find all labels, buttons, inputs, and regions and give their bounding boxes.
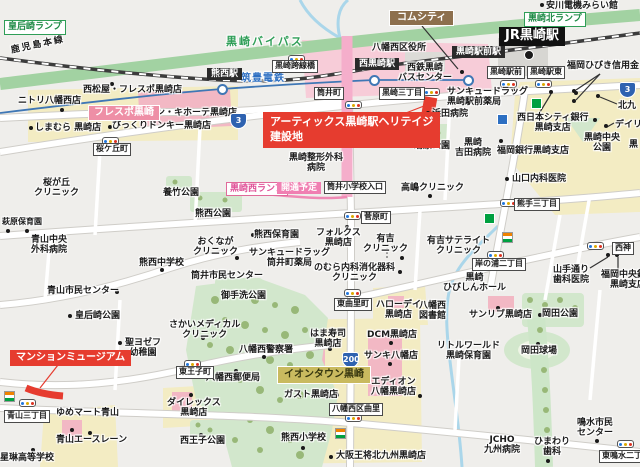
map-label: 筑豊電鉄 xyxy=(241,73,285,85)
map-label: 西松屋・フレスポ黒崎店 xyxy=(83,85,182,95)
poi-dot xyxy=(389,341,393,345)
map-label: 皇后崎ランプ xyxy=(4,20,66,35)
map-label: 安川電機みらい館 xyxy=(546,1,618,11)
map-label: 黒崎駅東 xyxy=(527,66,565,79)
poi-dot xyxy=(572,99,576,103)
map-label: DCM黒崎店 xyxy=(367,330,417,340)
map-label: さかいメディカル クリニック xyxy=(169,320,240,341)
seven-eleven-icon xyxy=(4,391,15,402)
map-label: 山口内科医院 xyxy=(512,174,566,184)
map-label: 開通予定 xyxy=(277,182,321,194)
green-store-icon xyxy=(531,98,542,109)
green-store-icon xyxy=(484,213,495,224)
map-label: 黒崎跨線橋 xyxy=(272,60,318,73)
map-label: ニトリ八幡西店 xyxy=(18,96,81,106)
poi-dot xyxy=(398,270,402,274)
map-label: 西鉄黒崎 バスセンター xyxy=(398,63,452,84)
seven-eleven-icon xyxy=(335,428,346,439)
poi-dot xyxy=(6,229,10,233)
map-label: リトルワールド 黒崎保育園 xyxy=(437,341,500,362)
map-label: ゆめマート青山 xyxy=(56,408,119,418)
map-label: 青山三丁目 xyxy=(4,410,50,423)
map-label: 西日本シティ銀行 黒崎支店 xyxy=(517,113,588,134)
map-label: 萩原保育園 xyxy=(2,217,42,226)
map-canvas: 皇后崎ランプ黒崎北ランプ黒崎バイパス鹿児島本線筑豊電鉄安川電機みらい館JR黒崎駅… xyxy=(0,0,640,467)
map-label: サンリブ黒崎店 xyxy=(469,310,532,320)
poi-dot xyxy=(118,341,122,345)
kurosaki-area-map: 皇后崎ランプ黒崎北ランプ黒崎バイパス鹿児島本線筑豊電鉄安川電機みらい館JR黒崎駅… xyxy=(0,0,640,467)
map-label: ダイレックス 黒崎店 xyxy=(167,398,221,419)
map-label: 西神 xyxy=(612,242,634,255)
seven-eleven-icon xyxy=(502,232,513,243)
poi-dot xyxy=(460,70,464,74)
map-label: ひまわり 歯科 xyxy=(534,437,570,458)
tram-station-marker xyxy=(463,75,474,86)
map-label: 青山エースレーン xyxy=(56,435,127,445)
map-label: 岡田公園 xyxy=(542,309,578,319)
poi-dot xyxy=(540,3,544,7)
map-label: 黒崎整形外科 病院 xyxy=(289,153,343,174)
poi-dot xyxy=(301,446,305,450)
poi-dot xyxy=(499,139,503,143)
map-label: 八幡西警察署 xyxy=(239,345,293,355)
map-label: 黒崎 ひびしんホール xyxy=(443,273,506,294)
map-label: 菅原町 xyxy=(361,211,391,224)
map-label: 八幡西 図書館 xyxy=(419,301,446,322)
map-label: しまむら 黒崎店 xyxy=(35,123,101,133)
map-label: 桜が丘 クリニック xyxy=(34,178,79,199)
map-label: 黒崎駅前 xyxy=(487,66,525,79)
map-label: 東鳴水二丁目 xyxy=(599,450,640,463)
map-label: 星琳高等学校 xyxy=(0,453,54,463)
poi-dot xyxy=(595,439,599,443)
poi-dot xyxy=(329,455,333,459)
map-label: 八幡西区役所 xyxy=(372,43,426,53)
map-label: 八幡西区曲里 xyxy=(329,403,383,416)
map-label: 筒井小学校入口 xyxy=(324,181,386,194)
map-label: 熊西小学校 xyxy=(281,433,326,443)
map-label: 熊西公園 xyxy=(195,209,231,219)
map-label: 八幡西郵便局 xyxy=(206,373,260,383)
tram-station-marker xyxy=(217,84,228,95)
poi-dot xyxy=(574,91,578,95)
map-label: 鹿児島本線 xyxy=(10,35,66,57)
map-label: びっくりドンキー黒崎店 xyxy=(112,121,211,131)
poi-dot xyxy=(189,393,193,397)
map-label: 岸の浦二丁目 xyxy=(472,258,526,271)
poi-dot xyxy=(31,448,35,452)
poi-dot xyxy=(549,90,553,94)
poi-dot xyxy=(593,118,597,122)
map-label: のむら内科消化器科 クリニック xyxy=(314,263,395,284)
map-label: 東曲里町 xyxy=(334,298,372,311)
map-label: 黒 xyxy=(629,140,638,150)
poi-dot xyxy=(604,124,608,128)
map-label: 黒崎三丁目 xyxy=(379,87,425,100)
poi-dot xyxy=(606,253,610,257)
poi-dot xyxy=(68,314,72,318)
map-label: 熊西保育園 xyxy=(254,230,299,240)
map-label: はま寿司 黒崎店 xyxy=(310,329,346,350)
map-label: 筒井町 xyxy=(314,87,344,100)
map-label: 福岡銀行黒崎支店 xyxy=(497,146,569,156)
map-label: コムシティ xyxy=(389,10,454,26)
map-label: ドン・キホーテ黒崎店 xyxy=(147,108,237,118)
map-label: エディオン 八幡黒崎店 xyxy=(371,377,416,398)
map-label: 熊西中学校 xyxy=(139,258,184,268)
poi-dot xyxy=(546,459,550,463)
traffic-light-icon xyxy=(587,242,604,250)
traffic-light-icon xyxy=(344,212,361,220)
route-3-shield: 3 xyxy=(619,82,636,98)
map-label: 御手洗公園 xyxy=(221,291,266,301)
map-label: 熊手三丁目 xyxy=(514,198,560,211)
jr-station-marker xyxy=(524,50,534,60)
map-label: フレスポ黒崎 xyxy=(88,105,160,121)
poi-dot xyxy=(70,428,74,432)
map-label: 岡田球場 xyxy=(521,346,557,356)
map-label: ガスト黒崎店 xyxy=(284,390,338,400)
map-label: 青山市民センター xyxy=(47,286,119,296)
map-label: 有吉サテライト クリニック xyxy=(427,236,490,257)
map-label: 桜ケ丘町 xyxy=(93,143,131,156)
poi-dot xyxy=(400,256,404,260)
traffic-light-icon xyxy=(19,399,36,407)
map-label: 黒崎 吉田病院 xyxy=(455,138,491,159)
poi-dot xyxy=(505,177,509,181)
map-label: JR黒崎駅 xyxy=(499,27,565,46)
map-label: デイリ xyxy=(615,120,640,130)
route-3-shield: 3 xyxy=(230,113,247,129)
map-label: 西黒崎駅 xyxy=(355,58,399,70)
map-label: 熊西駅 xyxy=(207,68,242,80)
map-label: 山手通り 歯科医院 xyxy=(553,265,589,286)
poi-dot xyxy=(262,355,266,359)
traffic-light-icon xyxy=(535,80,552,88)
poi-dot xyxy=(596,94,600,98)
poi-dot xyxy=(428,194,432,198)
map-label: サンキュードラッグ 黒崎駅前薬局 xyxy=(447,87,528,108)
map-label: 東王子町 xyxy=(176,366,214,379)
map-label: イオンタウン黒崎 xyxy=(277,366,371,384)
map-label: 西王子公園 xyxy=(180,436,225,446)
map-label: 福岡中央銀行 黒崎支店 xyxy=(601,270,640,291)
map-label: 黒崎北ランプ xyxy=(524,12,586,27)
traffic-light-icon xyxy=(344,289,361,297)
traffic-light-icon xyxy=(423,88,440,96)
poi-dot xyxy=(25,229,29,233)
poi-dot xyxy=(418,394,422,398)
map-label: おくなが クリニック xyxy=(193,237,238,258)
poi-dot xyxy=(60,108,64,112)
map-label: JCHO 九州病院 xyxy=(484,435,520,456)
blue-store-icon xyxy=(497,114,508,125)
map-label: 福岡ひびき信用金 xyxy=(567,61,639,71)
map-label: サンキ八幡店 xyxy=(364,351,418,361)
map-label: 鳴水市民 センター xyxy=(577,418,613,439)
map-label: 黒崎駅前駅 xyxy=(452,46,505,58)
traffic-light-icon xyxy=(345,101,362,109)
map-label: 有吉 クリニック xyxy=(363,234,408,255)
map-label: 北九 xyxy=(618,101,636,111)
poi-dot xyxy=(388,362,392,366)
map-label: ハローデイ 黒崎店 xyxy=(376,300,421,321)
poi-dot xyxy=(160,268,164,272)
poi-dot xyxy=(29,126,33,130)
map-label: アーティックス黒崎駅ヘリテイジ 建設地 xyxy=(263,112,440,148)
map-label: 養竹公園 xyxy=(163,188,199,198)
tram-station-marker xyxy=(369,75,380,86)
map-label: フォルクス 黒崎店 xyxy=(316,228,361,249)
map-label: 筒井市民センター xyxy=(191,271,263,281)
traffic-light-icon xyxy=(617,440,634,448)
map-label: 黒崎中央 公園 xyxy=(584,133,620,154)
map-label: 大阪王将北九州黒崎店 xyxy=(336,451,426,461)
map-label: 黒崎バイパス xyxy=(226,36,304,49)
map-label: 青山中央 外科病院 xyxy=(31,235,67,256)
map-label: 高嶋クリニック xyxy=(401,183,464,193)
map-label: 皇后崎公園 xyxy=(75,311,120,321)
map-label: マンションミュージアム xyxy=(10,350,131,366)
